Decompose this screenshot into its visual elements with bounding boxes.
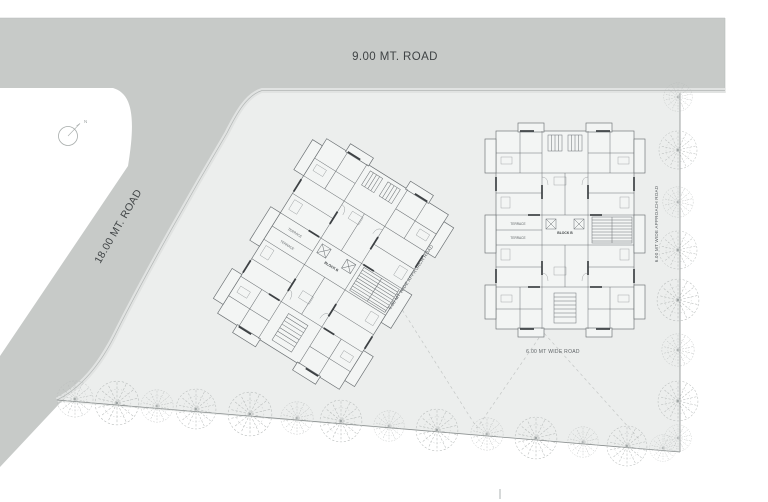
site-plan: TERRACE TERRACE BLOCK B N 9.00 MT. ROAD … [0,0,768,502]
approach-road-right-label: 6.00 MT WIDE APPROACH ROAD [654,185,659,262]
north-compass-icon [59,124,81,146]
compass-north-label: N [84,119,87,124]
wide-road-label: 6.00 MT WIDE ROAD [526,349,580,355]
top-road-label: 9.00 MT. ROAD [352,51,438,63]
site-plan-svg: TERRACE TERRACE BLOCK B N 9.00 MT. ROAD … [0,0,768,502]
building-block-right [485,123,645,337]
